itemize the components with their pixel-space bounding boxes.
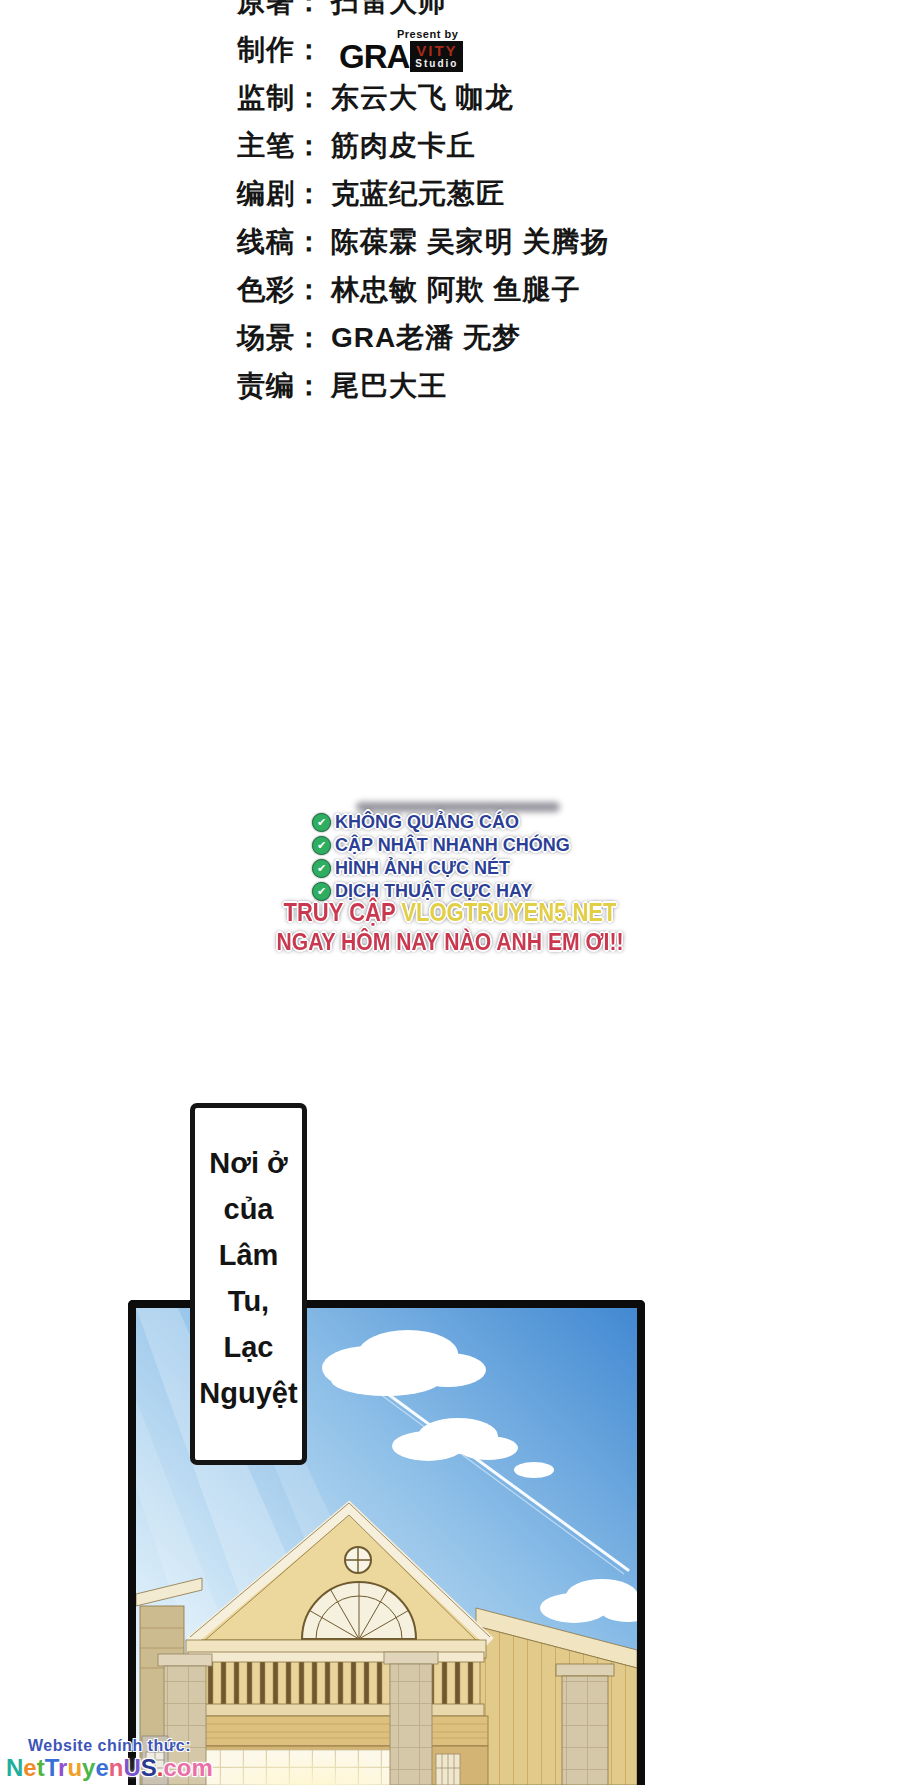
credit-value: 克蓝纪元葱匠 bbox=[331, 175, 505, 213]
watermark-letter: n bbox=[109, 1754, 124, 1781]
credit-label: 主笔： bbox=[237, 127, 324, 165]
promo-feature-label: HÌNH ẢNH CỰC NÉT bbox=[335, 858, 510, 879]
check-circle-icon: ✔ bbox=[312, 836, 331, 855]
gravity-studio-logo: Present by GRA VITY Studio bbox=[339, 29, 463, 72]
credit-value: 陈葆霖 吴家明 关腾扬 bbox=[331, 223, 610, 261]
promo-cta-line2-text: NGAY HÔM NAY NÀO ANH EM ƠI!! bbox=[277, 928, 624, 955]
watermark-letter: t bbox=[37, 1754, 45, 1781]
credit-label: 制作： bbox=[237, 31, 324, 69]
promo-cta-line2: NGAY HÔM NAY NÀO ANH EM ƠI!! bbox=[54, 928, 846, 956]
credit-value: 尾巴大王 bbox=[331, 367, 447, 405]
site-watermark: Website chính thức: NetTruyenUS.com bbox=[6, 1738, 213, 1780]
credit-label: 色彩： bbox=[237, 271, 324, 309]
credit-label: 责编： bbox=[237, 367, 324, 405]
watermark-letter: y bbox=[82, 1754, 95, 1781]
caption-bubble: Nơi ở của Lâm Tu, Lạc Nguyệt bbox=[190, 1103, 307, 1465]
logo-vity-text: VITY bbox=[416, 43, 457, 58]
promo-feature-list: ✔ KHÔNG QUẢNG CÁO ✔ CẬP NHẬT NHANH CHÓNG… bbox=[312, 811, 570, 903]
credit-row-author: 原著： 扫雷大师 bbox=[237, 0, 610, 26]
caption-line: của bbox=[195, 1186, 302, 1232]
caption-line: Lâm bbox=[195, 1232, 302, 1278]
credit-row-lead-artist: 主笔： 筋肉皮卡丘 bbox=[237, 122, 610, 170]
promo-feature: ✔ HÌNH ẢNH CỰC NÉT bbox=[312, 857, 570, 880]
watermark-letter: N bbox=[6, 1754, 23, 1781]
credit-label: 线稿： bbox=[237, 223, 324, 261]
watermark-letter: r bbox=[58, 1754, 67, 1781]
logo-box: VITY Studio bbox=[410, 41, 463, 72]
watermark-letter: o bbox=[177, 1754, 192, 1781]
watermark-letter: U bbox=[123, 1754, 140, 1781]
credit-value: 筋肉皮卡丘 bbox=[331, 127, 476, 165]
caption-line: Tu, bbox=[195, 1278, 302, 1324]
check-circle-icon: ✔ bbox=[312, 859, 331, 878]
credit-row-script: 编剧： 克蓝纪元葱匠 bbox=[237, 170, 610, 218]
credits-block: 原著： 扫雷大师 制作： Present by GRA VITY Studio … bbox=[237, 0, 610, 410]
logo-main: GRA VITY Studio bbox=[339, 41, 463, 72]
credit-label: 监制： bbox=[237, 79, 324, 117]
credit-value: GRA老潘 无梦 bbox=[331, 319, 521, 357]
logo-studio-text: Studio bbox=[415, 59, 458, 69]
logo-gra-text: GRA bbox=[339, 43, 409, 71]
watermark-letter: T bbox=[45, 1754, 58, 1781]
credit-value: 扫雷大师 bbox=[331, 0, 447, 21]
check-circle-icon: ✔ bbox=[312, 813, 331, 832]
promo-cta-line1: TRUY CẬP VLOGTRUYEN5.NET bbox=[54, 898, 846, 927]
credit-row-lineart: 线稿： 陈葆霖 吴家明 关腾扬 bbox=[237, 218, 610, 266]
watermark-letter: c bbox=[163, 1754, 176, 1781]
credit-row-color: 色彩： 林忠敏 阿欺 鱼腿子 bbox=[237, 266, 610, 314]
credit-row-supervisor: 监制： 东云大飞 咖龙 bbox=[237, 74, 610, 122]
promo-site-name: VLOGTRUYEN5.NET bbox=[401, 898, 616, 926]
credit-label: 原著： bbox=[237, 0, 324, 21]
promo-feature: ✔ CẬP NHẬT NHANH CHÓNG bbox=[312, 834, 570, 857]
watermark-letter: u bbox=[67, 1754, 82, 1781]
credit-row-background: 场景： GRA老潘 无梦 bbox=[237, 314, 610, 362]
promo-feature: ✔ KHÔNG QUẢNG CÁO bbox=[312, 811, 570, 834]
credit-value: 林忠敏 阿欺 鱼腿子 bbox=[331, 271, 581, 309]
credit-value: 东云大飞 咖龙 bbox=[331, 79, 514, 117]
caption-line: Lạc bbox=[195, 1324, 302, 1370]
caption-line: Nguyệt bbox=[195, 1370, 302, 1416]
credit-label: 编剧： bbox=[237, 175, 324, 213]
watermark-letter: m bbox=[192, 1754, 213, 1781]
watermark-letter: S bbox=[141, 1754, 157, 1781]
comic-page: 原著： 扫雷大师 制作： Present by GRA VITY Studio … bbox=[0, 0, 900, 1785]
watermark-letter: e bbox=[23, 1754, 36, 1781]
caption-line: Nơi ở bbox=[195, 1140, 302, 1186]
watermark-site: NetTruyenUS.com bbox=[6, 1756, 213, 1780]
promo-feature-label: KHÔNG QUẢNG CÁO bbox=[335, 812, 519, 833]
credit-row-production: 制作： Present by GRA VITY Studio bbox=[237, 26, 610, 74]
credit-row-editor: 责编： 尾巴大王 bbox=[237, 362, 610, 410]
watermark-caption: Website chính thức: bbox=[28, 1738, 213, 1754]
promo-cta-prefix: TRUY CẬP bbox=[284, 898, 402, 926]
watermark-letter: e bbox=[95, 1754, 108, 1781]
promo-feature-label: CẬP NHẬT NHANH CHÓNG bbox=[335, 835, 570, 856]
credit-label: 场景： bbox=[237, 319, 324, 357]
